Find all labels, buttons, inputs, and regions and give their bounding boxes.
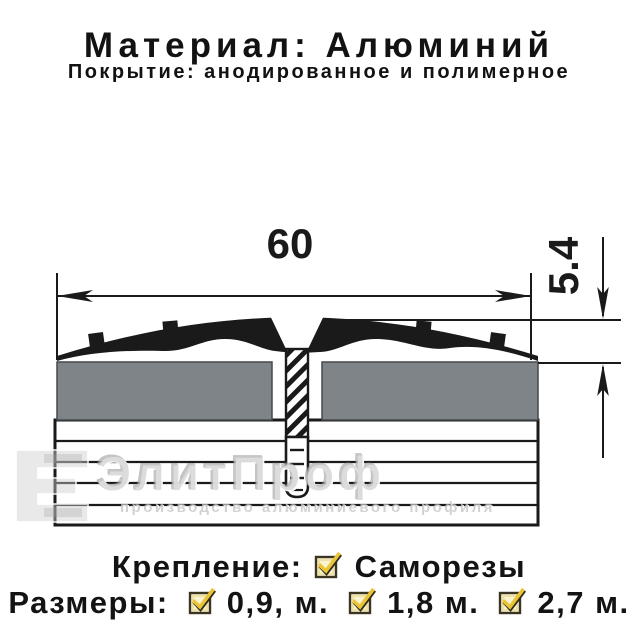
floor-panel-right xyxy=(322,362,538,420)
size-option: 2,7 м. xyxy=(537,585,629,621)
product-card: Материал: Алюминий Покрытие: анодированн… xyxy=(0,0,638,638)
profile-rib xyxy=(162,320,178,335)
checkbox-checked-icon xyxy=(313,549,345,581)
width-dimension-label: 60 xyxy=(230,220,350,268)
cross-section-drawing xyxy=(0,0,638,638)
checkbox-checked-icon xyxy=(347,585,379,617)
profile-rib xyxy=(88,332,105,348)
fastening-value: Саморезы xyxy=(355,549,527,585)
profile-rib xyxy=(415,320,431,335)
sizes-line: Размеры: 0,9, м. 1,8 м. 2,7 м. xyxy=(0,585,638,621)
screw-shank-hatched xyxy=(286,349,308,437)
size-option: 0,9, м. xyxy=(227,585,329,621)
size-option: 1,8 м. xyxy=(387,585,479,621)
checkbox-checked-icon xyxy=(497,585,529,617)
sizes-label: Размеры: xyxy=(8,585,168,621)
profile-rib xyxy=(489,332,506,348)
floor-panel-left xyxy=(57,362,272,420)
screw-tip xyxy=(286,437,308,497)
checkbox-checked-icon xyxy=(187,585,219,617)
fastening-line: Крепление: Саморезы xyxy=(0,549,638,585)
fastening-label: Крепление: xyxy=(112,549,303,585)
self-tapping-screw xyxy=(286,349,308,497)
